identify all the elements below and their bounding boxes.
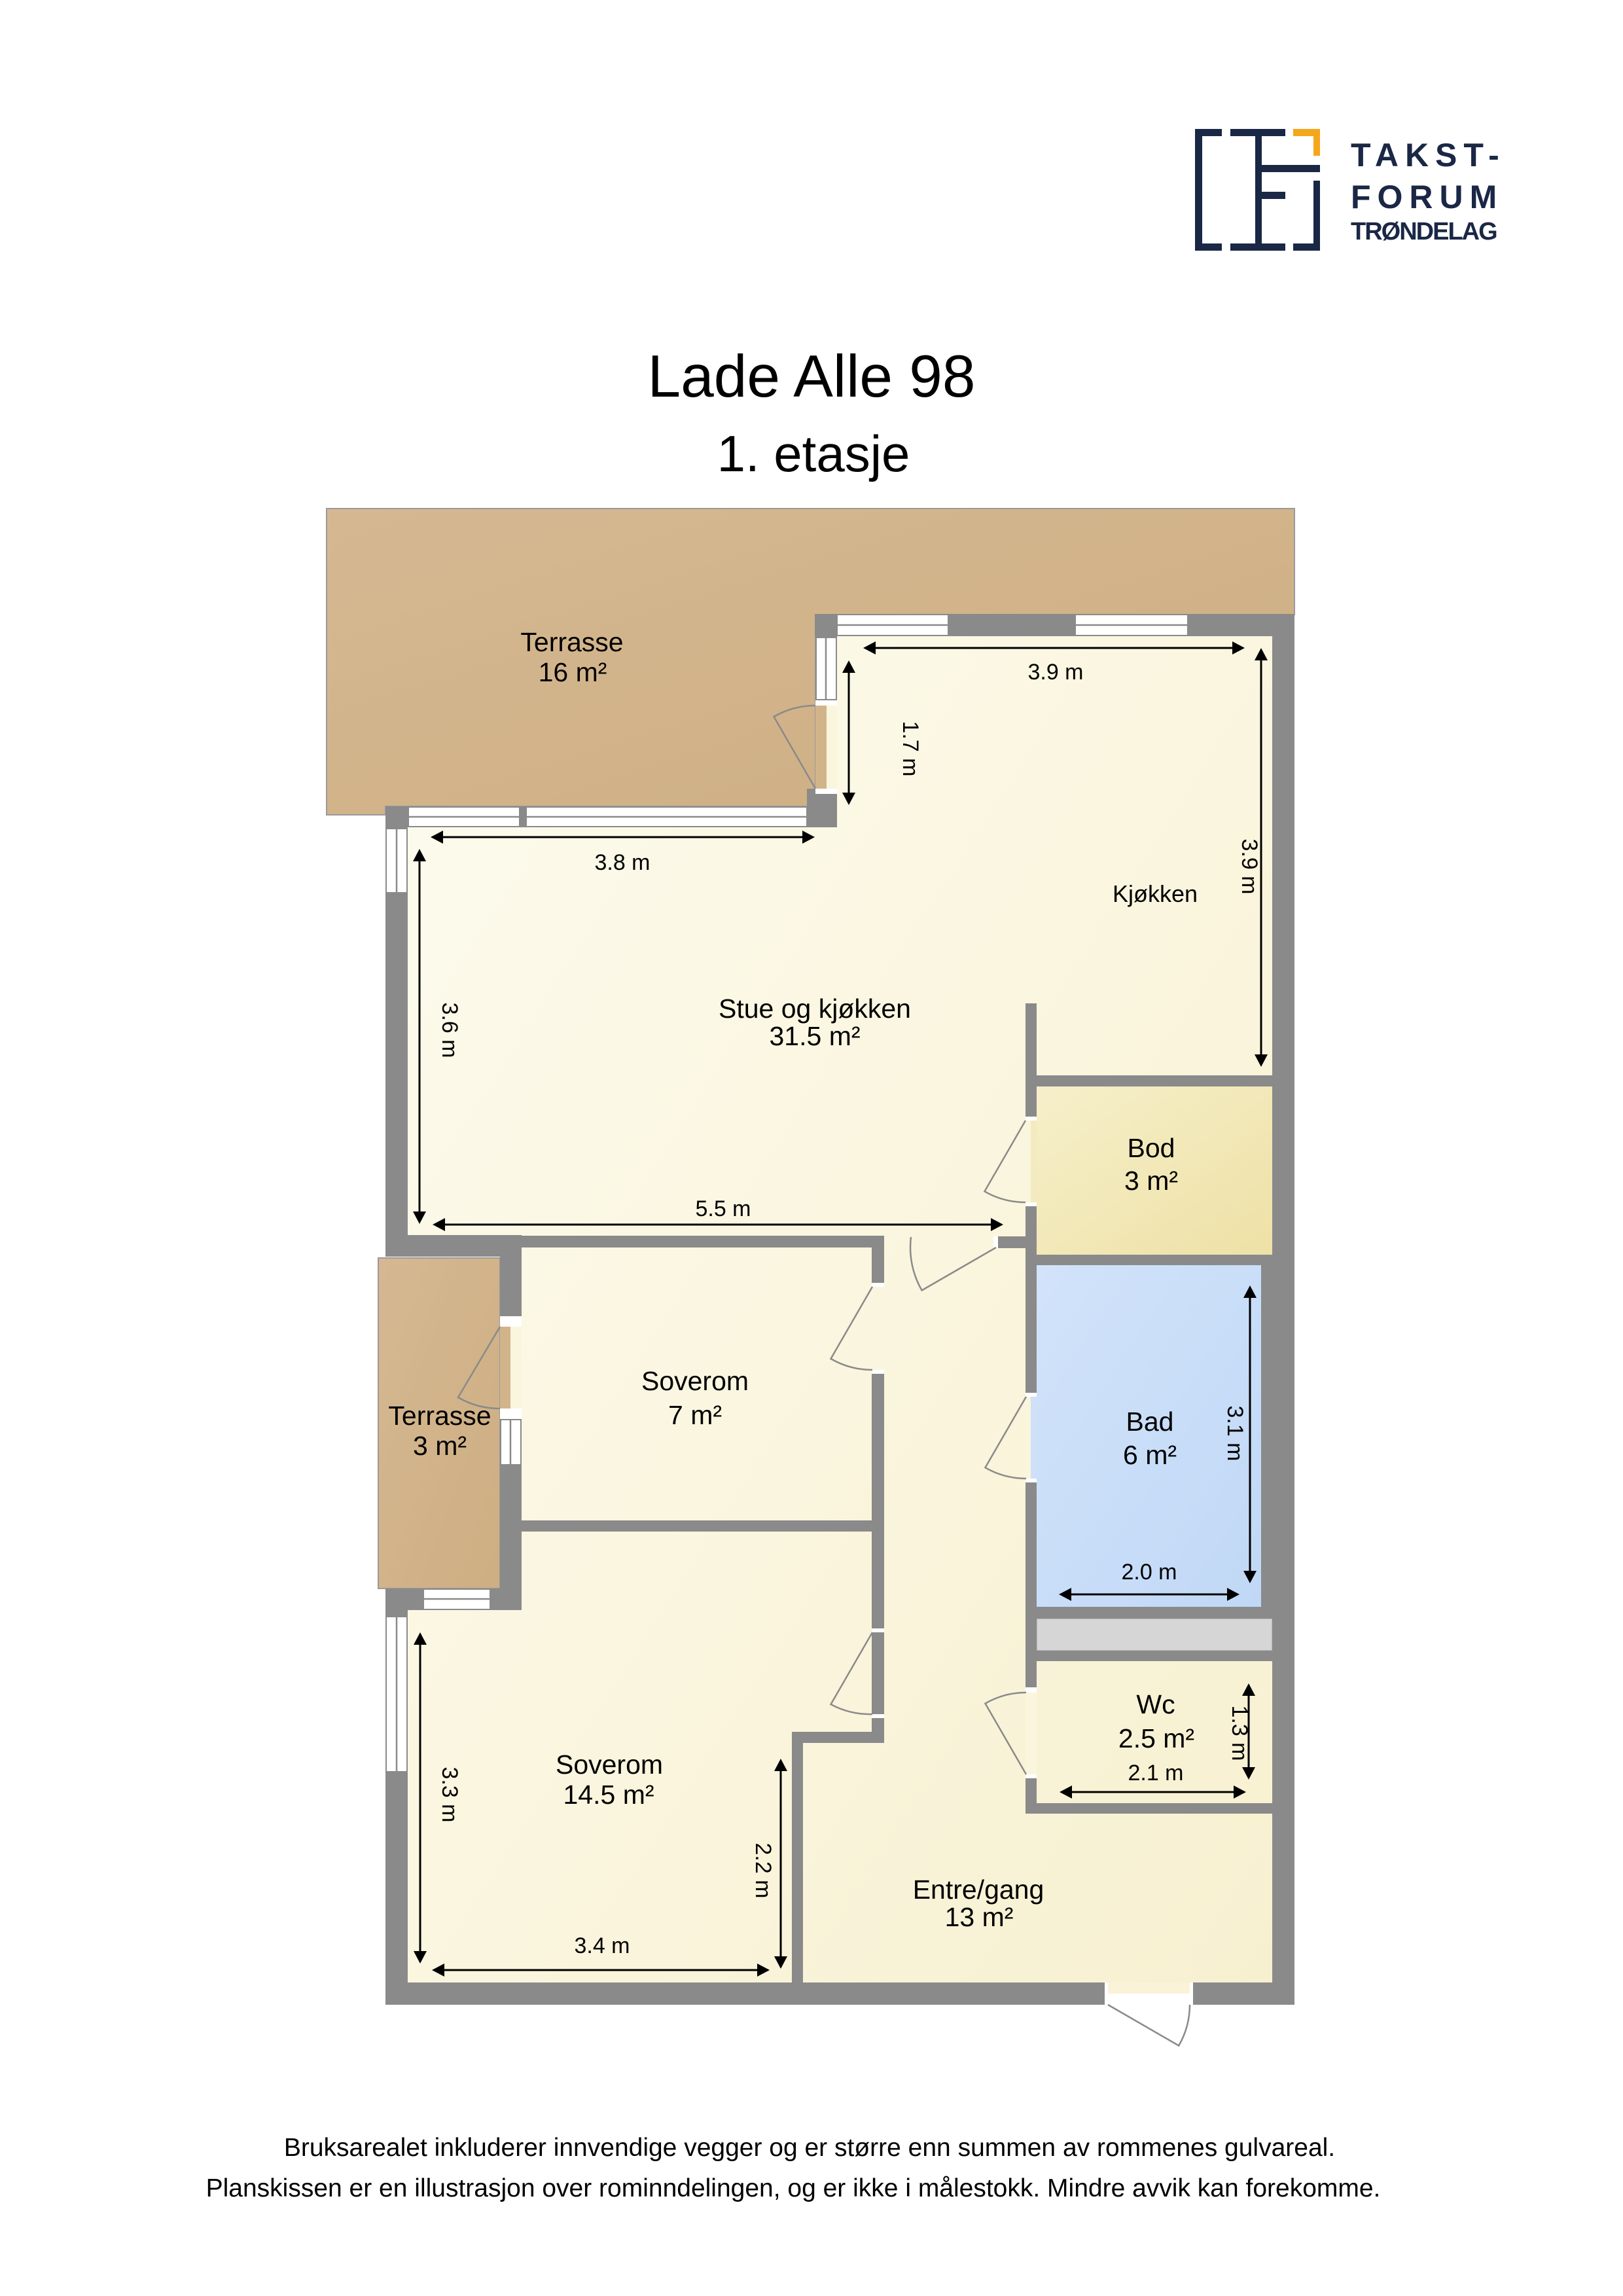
svg-text:1. etasje: 1. etasje [717,425,910,482]
svg-text:3 m²: 3 m² [413,1431,467,1461]
svg-text:TRØNDELAG: TRØNDELAG [1351,218,1497,245]
svg-text:2.5 m²: 2.5 m² [1118,1723,1194,1753]
svg-text:Soverom: Soverom [641,1366,749,1396]
svg-text:Terrasse: Terrasse [388,1401,491,1431]
svg-text:2.1 m: 2.1 m [1128,1761,1183,1785]
svg-text:Stue og kjøkken: Stue og kjøkken [719,994,911,1024]
svg-text:Soverom: Soverom [556,1749,663,1780]
svg-text:3.4 m: 3.4 m [574,1933,630,1958]
svg-text:3.1 m: 3.1 m [1222,1405,1247,1461]
svg-text:TAKST-: TAKST- [1351,137,1506,173]
svg-text:2.0 m: 2.0 m [1121,1560,1177,1585]
svg-text:13 m²: 13 m² [945,1902,1014,1932]
svg-text:6 m²: 6 m² [1123,1440,1177,1470]
svg-text:31.5 m²: 31.5 m² [770,1021,861,1051]
svg-text:Bad: Bad [1126,1407,1174,1437]
svg-text:Lade Alle 98: Lade Alle 98 [648,344,976,410]
svg-text:3.9 m: 3.9 m [1027,660,1083,685]
svg-text:Bruksarealet inkluderer innven: Bruksarealet inkluderer innvendige vegge… [284,2134,1335,2162]
svg-text:Terrasse: Terrasse [520,627,623,657]
svg-text:Kjøkken: Kjøkken [1113,880,1198,907]
svg-text:7 m²: 7 m² [668,1400,722,1430]
svg-text:16 m²: 16 m² [539,657,607,687]
svg-text:14.5 m²: 14.5 m² [563,1780,654,1810]
svg-text:3.6 m: 3.6 m [437,1002,462,1058]
svg-text:3.9 m: 3.9 m [1237,838,1262,894]
svg-text:3 m²: 3 m² [1124,1166,1178,1196]
svg-text:2.2 m: 2.2 m [751,1842,776,1898]
svg-text:1.7 m: 1.7 m [898,721,923,776]
svg-text:Wc: Wc [1136,1689,1175,1719]
svg-text:3.3 m: 3.3 m [437,1767,462,1822]
svg-text:1.3 m: 1.3 m [1227,1705,1252,1761]
svg-text:5.5 m: 5.5 m [695,1196,751,1221]
svg-text:Entre/gang: Entre/gang [913,1874,1044,1905]
svg-text:Bod: Bod [1128,1133,1175,1163]
svg-text:3.8 m: 3.8 m [594,850,650,875]
svg-text:FORUM: FORUM [1351,179,1503,215]
svg-text:Planskissen er en illustrasjon: Planskissen er en illustrasjon over romi… [206,2174,1381,2202]
